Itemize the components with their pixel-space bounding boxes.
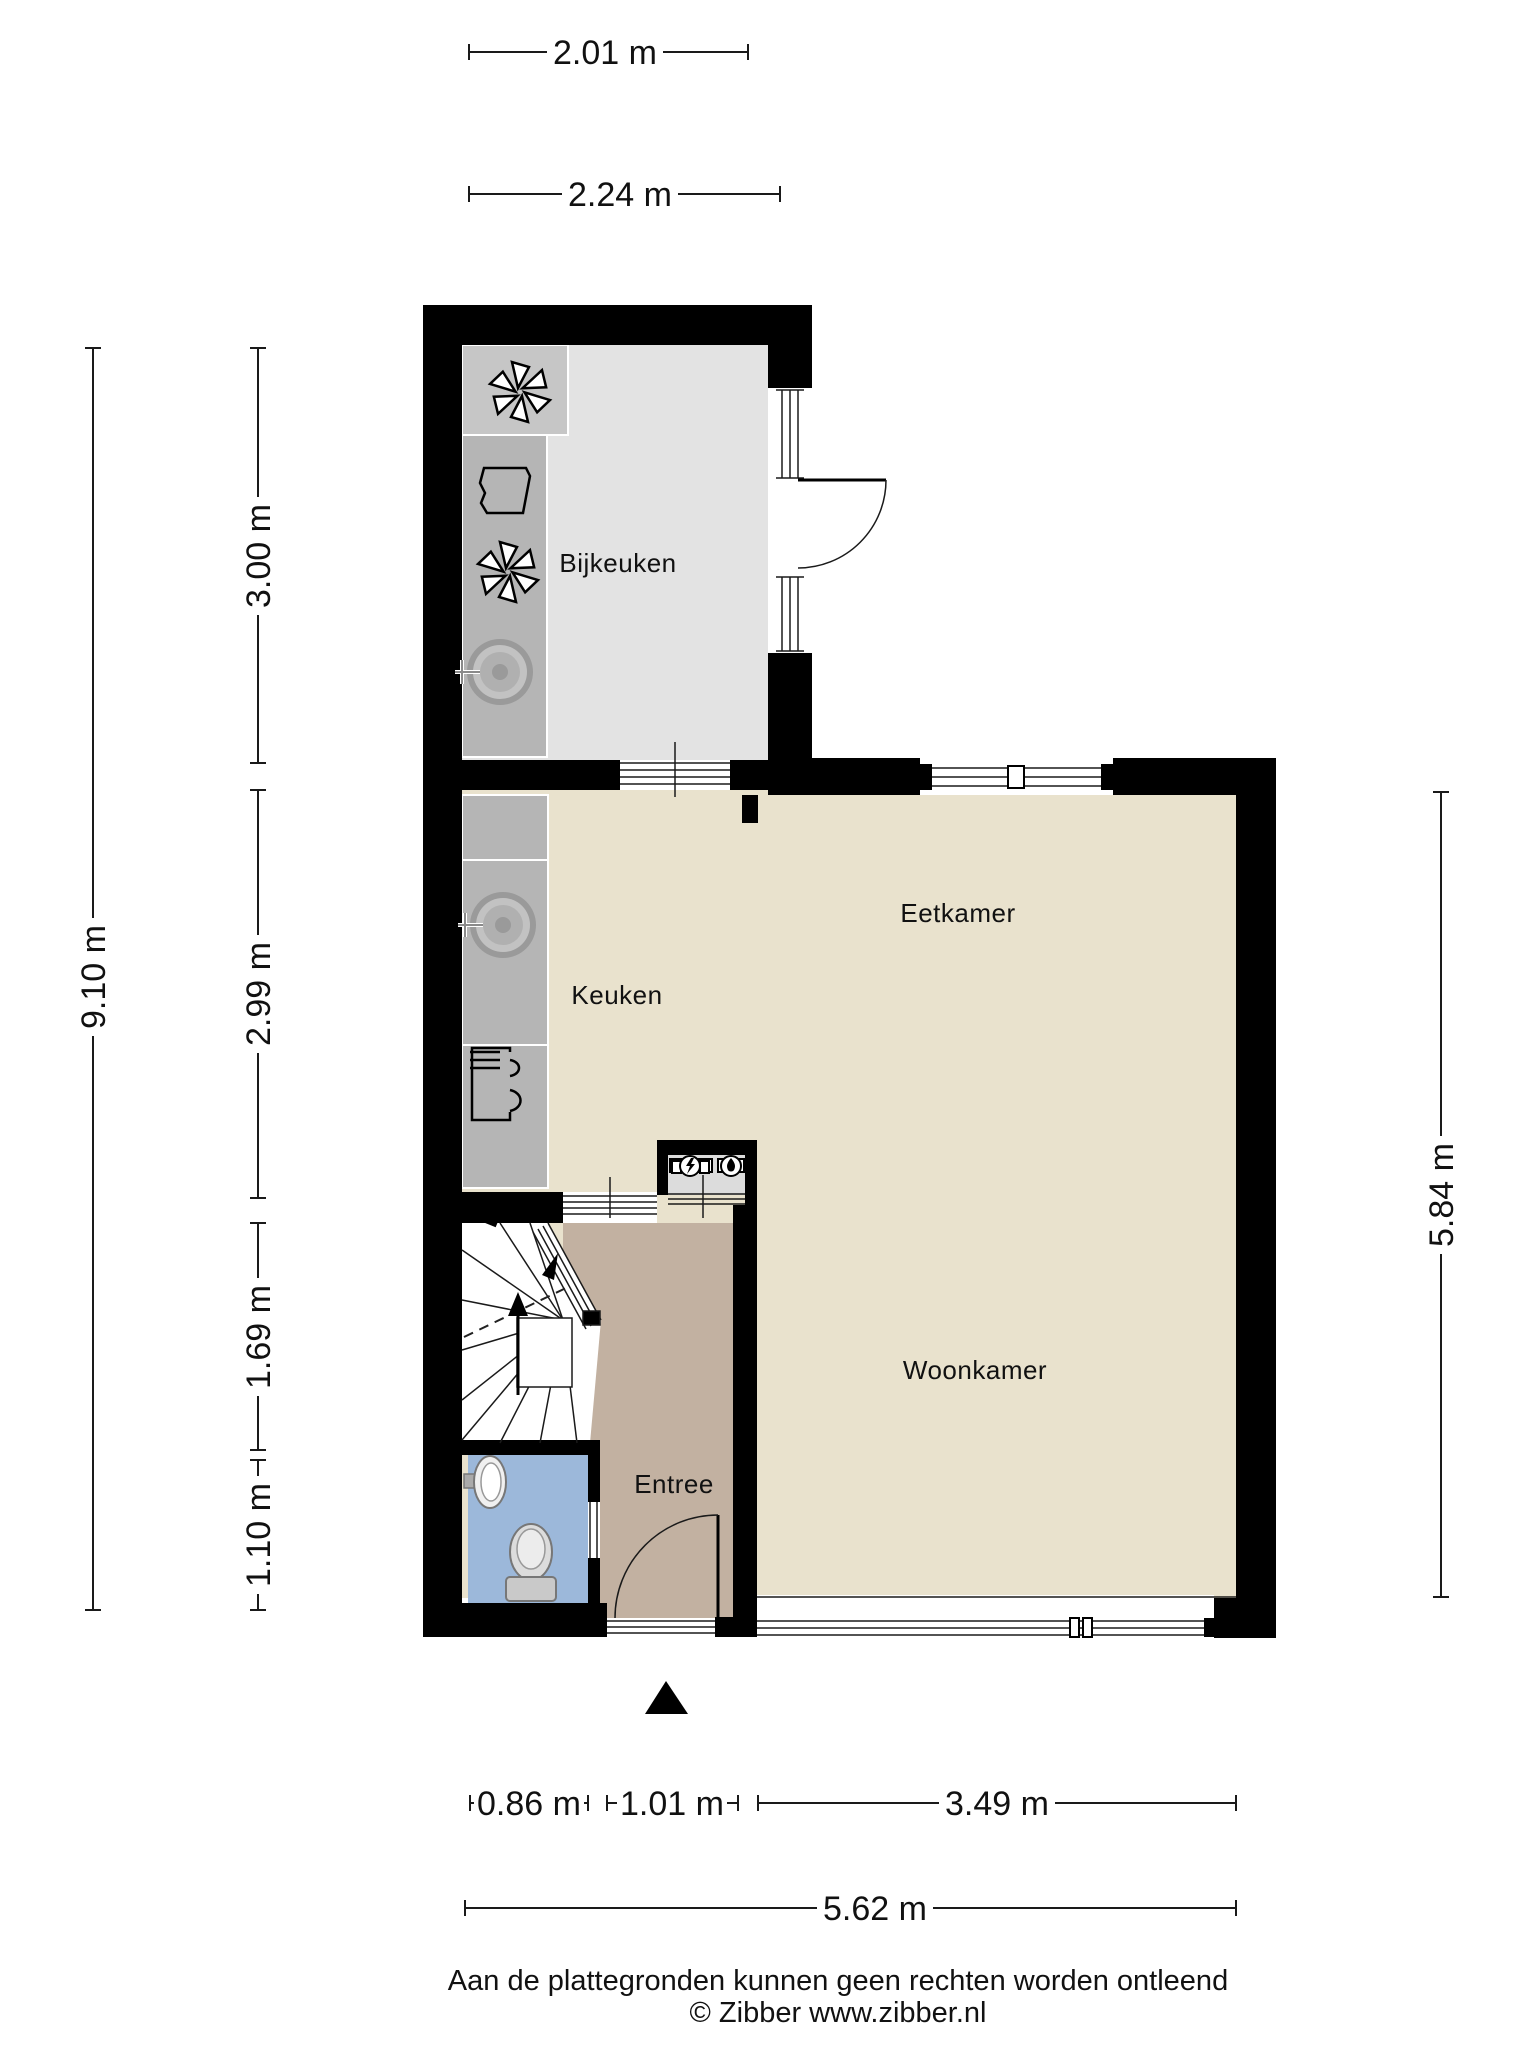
svg-text:2.24 m: 2.24 m (568, 176, 672, 214)
svg-text:2.99 m: 2.99 m (240, 942, 278, 1046)
svg-text:1.69 m: 1.69 m (240, 1285, 278, 1389)
dimension-left-total: 9.10 m (74, 348, 113, 1610)
meter-closet-top-wall (657, 1140, 757, 1155)
keuken-counter (462, 795, 548, 1188)
dimension-top-2: 2.24 m (469, 175, 780, 214)
toilet-wall-upper (588, 1455, 600, 1502)
dimension-left-4: 1.10 m (239, 1460, 278, 1610)
room-label-keuken: Keuken (571, 980, 662, 1010)
svg-text:1.10 m: 1.10 m (240, 1483, 278, 1587)
floorplan-page: Bijkeuken Keuken Eetkamer Woonkamer Entr… (0, 0, 1536, 2048)
dimension-top-1: 2.01 m (469, 33, 748, 72)
window (768, 575, 812, 653)
dimension-bottom-1: 0.86 m (470, 1784, 588, 1823)
svg-text:3.49 m: 3.49 m (945, 1785, 1049, 1823)
entrance-arrow-icon (645, 1681, 688, 1714)
bijkeuken-keuken-wall (423, 760, 620, 790)
svg-text:3.00 m: 3.00 m (240, 504, 278, 608)
dimension-left-1: 3.00 m (239, 348, 278, 763)
bottom-left-wall (423, 1603, 607, 1637)
meter-closet-right-wall (745, 1140, 757, 1205)
svg-text:0.86 m: 0.86 m (477, 1785, 581, 1823)
left-exterior-wall (423, 305, 462, 1637)
footer: Aan de plattegronden kunnen geen rechten… (448, 1965, 1228, 2029)
bijkeuken-right-wall-upper (768, 305, 812, 390)
toilet-door (588, 1502, 600, 1558)
floorplan-canvas: Bijkeuken Keuken Eetkamer Woonkamer Entr… (0, 0, 1536, 2048)
window (768, 388, 812, 480)
meter-closet-left-wall (657, 1140, 668, 1195)
bijkeuken-keuken-wall (730, 760, 768, 790)
copyright-text: © Zibber www.zibber.nl (690, 1997, 987, 2029)
room-label-bijkeuken: Bijkeuken (559, 548, 676, 578)
window (757, 1595, 1236, 1637)
dimension-right: 5.84 m (1422, 792, 1461, 1597)
eetkamer-top-wall (768, 758, 920, 795)
svg-text:5.62 m: 5.62 m (823, 1890, 927, 1928)
toilet-wall-lower (588, 1558, 600, 1603)
entree-woonkamer-wall (733, 1205, 757, 1637)
bijkeuken-top-wall (423, 305, 812, 345)
room-label-entree: Entree (634, 1469, 714, 1499)
dimension-bottom-total: 5.62 m (465, 1889, 1236, 1928)
gas-meter-icon (718, 1156, 744, 1176)
bottom-wall-stub (715, 1617, 757, 1637)
exterior-door-swing (768, 480, 886, 575)
dimension-left-2: 2.99 m (239, 790, 278, 1198)
svg-text:2.01 m: 2.01 m (553, 34, 657, 72)
room-label-woonkamer: Woonkamer (903, 1355, 1047, 1385)
svg-text:9.10 m: 9.10 m (75, 925, 113, 1029)
svg-text:1.01 m: 1.01 m (620, 1785, 724, 1823)
disclaimer-text: Aan de plattegronden kunnen geen rechten… (448, 1965, 1228, 1997)
dimension-bottom-3: 3.49 m (758, 1784, 1236, 1823)
toilet-icon (506, 1524, 556, 1601)
wall-stub (742, 795, 758, 823)
window (920, 758, 1113, 795)
dimension-left-3: 1.69 m (239, 1223, 278, 1450)
bottom-right-corner-wall (1214, 1598, 1276, 1638)
right-exterior-wall (1236, 758, 1276, 1638)
svg-text:5.84 m: 5.84 m (1423, 1143, 1461, 1247)
room-label-eetkamer: Eetkamer (900, 898, 1015, 928)
stairs-toilet-wall (423, 1440, 600, 1455)
dimension-bottom-2: 1.01 m (607, 1784, 738, 1823)
electric-meter-icon (670, 1156, 712, 1176)
keuken-entree-wall (423, 1192, 563, 1223)
